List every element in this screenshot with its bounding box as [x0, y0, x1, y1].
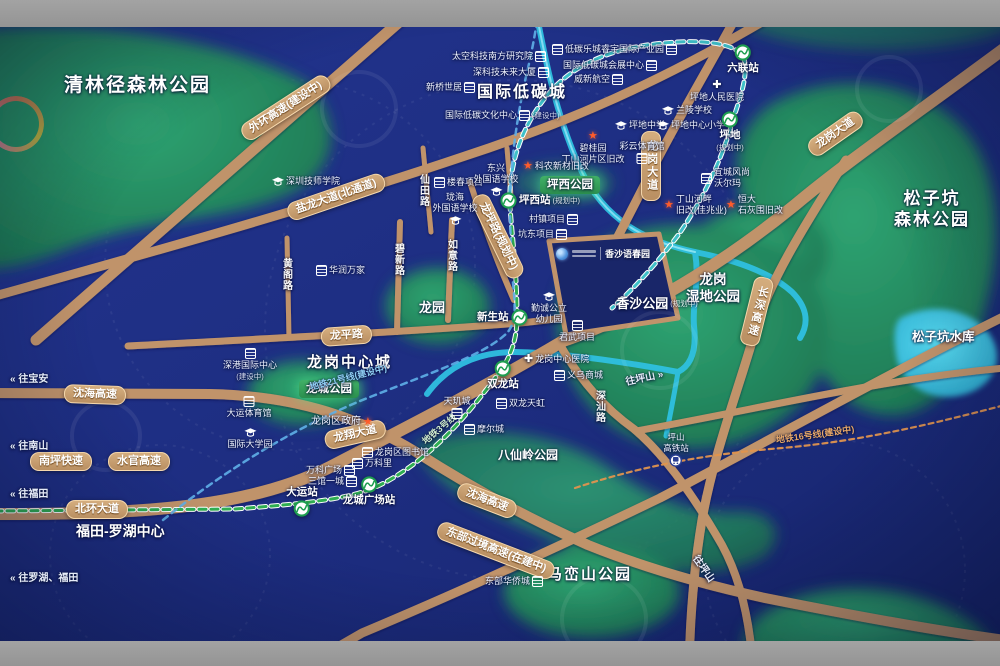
building-icon [552, 44, 563, 55]
poi-shuanglong-tianhong: 双龙天虹 [496, 398, 545, 409]
station-shuanglong: 双龙站 [487, 360, 519, 391]
developer-emblem-icon [556, 248, 568, 260]
park-qinglinjing-label: 清林径森林公园 [64, 74, 211, 98]
road-huangge-road-label: 黄阁路 [279, 258, 292, 291]
building-icon [612, 74, 623, 85]
building-icon [556, 229, 567, 240]
building-icon [464, 82, 475, 93]
poi-longgang-central-hospital: ✚龙岗中心医院 [524, 354, 589, 365]
poi-yiwu-mall: 义乌商城 [554, 370, 603, 381]
dir-to-futian: « 往福田 [10, 489, 48, 502]
poi-space-research-institute: 太空科技南方研究院 [452, 51, 546, 62]
metro-station-icon [722, 111, 739, 128]
building-icon [571, 320, 582, 331]
poi-tianji-city: 天玑城 [443, 396, 470, 419]
poi-shengang-intl-center: 深港国际中心(建设中) [223, 348, 277, 382]
building-icon [554, 370, 565, 381]
poi-hengda-shihuiwei-redev: ★恒大 石灰围旧改 [726, 194, 783, 217]
road-shenhai-expwy-w-pill: 沈海高速 [64, 384, 127, 405]
metro-station-icon [495, 360, 512, 377]
poi-kenong-redev: ★科农新材旧改 [523, 161, 589, 172]
metro-station-icon [735, 44, 752, 61]
building-icon [535, 51, 546, 62]
building-icon [244, 348, 255, 359]
school-icon [615, 121, 627, 131]
building-icon [316, 265, 327, 276]
building-icon [636, 153, 647, 164]
redev-star-icon: ★ [363, 417, 373, 428]
poi-vanke-li: 万科里 [352, 458, 392, 469]
poi-low-carbon-lecheng: 低碳乐城 [552, 44, 601, 55]
park-songzikeng-label: 松子坑 森林公园 [894, 188, 970, 231]
park-longyuan-label: 龙园 [419, 300, 445, 316]
poi-pingdi-central-primary: 坪地中心小学 [657, 120, 725, 131]
building-icon [519, 110, 530, 121]
rail-station-icon [669, 454, 682, 467]
redev-star-icon: ★ [588, 131, 598, 142]
hospital-icon: ✚ [524, 354, 533, 365]
station-dayun: 大运站 [286, 486, 318, 517]
poi-junwu-project: 君武项目 [559, 320, 595, 343]
metro-station-icon [294, 500, 311, 517]
poi-yicheng-walmart: 宜城风尚 沃尔玛 [701, 167, 750, 190]
road-shuiguan-expwy-pill: 水官高速 [108, 452, 170, 471]
building-icon [666, 44, 677, 55]
dir-to-luohu-futian: « 往罗湖、福田 [10, 573, 78, 586]
poi-dingshan-riverside-redev: ★丁山河畔 旧改(佳兆业) [664, 194, 727, 217]
school-icon [657, 121, 669, 131]
poi-low-carbon-culture-center: 国际低碳文化中心(建设中) [445, 110, 560, 121]
poi-moer-city: 摩尔城 [464, 424, 504, 435]
poi-xinqiao-shiju: 新桥世居 [426, 82, 475, 93]
status-bar-top [0, 0, 1000, 27]
redev-star-icon: ★ [726, 200, 736, 211]
park-baxianling-label: 八仙岭公园 [498, 448, 558, 463]
building-icon [701, 173, 712, 184]
station-longcheng-square: 龙城广场站 [343, 476, 396, 507]
building-icon [646, 60, 657, 71]
dir-to-nanshan: « 往南山 [10, 441, 48, 454]
poi-shenzhen-technician-college: 深圳技师学院 [272, 176, 340, 187]
road-shenshan-road-label: 深汕路 [592, 390, 605, 423]
school-icon [662, 106, 674, 116]
station-pingxi: 坪西站(规划中) [500, 192, 580, 209]
poi-vanke-plaza: 万科广场 [306, 465, 355, 476]
building-icon [464, 424, 475, 435]
location-map: 香沙语春园 清林径森林公园国际低碳城松子坑 森林公园松子坑水库龙岗 湿地公园香沙… [0, 0, 1000, 666]
building-icon [538, 67, 549, 78]
hospital-icon: ✚ [712, 80, 721, 91]
road-beihuan-avenue-pill: 北环大道 [66, 500, 128, 519]
station-pingdi-sub: (规划中) [716, 143, 744, 152]
poi-weixin-aviation: 威新航空 [574, 74, 623, 85]
poi-low-carbon-culture-center-sub: (建设中) [532, 111, 560, 120]
park-maluanshan-label: 马峦山公园 [547, 566, 632, 585]
poi-pingshan-hsr-station: 坪山 高铁站 [663, 432, 689, 467]
watermark-ring [320, 70, 398, 148]
area-low-carbon-city-label: 国际低碳城 [477, 83, 567, 103]
building-icon [496, 398, 507, 409]
road-ruyi-road-label: 如意路 [444, 239, 457, 272]
logo-divider [600, 247, 601, 260]
metro-station-icon [511, 309, 528, 326]
building-icon [344, 465, 355, 476]
station-pingxi-sub: (规划中) [553, 196, 581, 205]
poi-ruiyu-industrial-park: 睿宇国际产业园 [601, 44, 677, 55]
redev-star-icon: ★ [664, 200, 674, 211]
school-icon [543, 292, 555, 302]
road-bixin-road-label: 碧新路 [391, 243, 404, 276]
road-xiantian-road-label: 仙田路 [416, 174, 429, 207]
poi-pingdi-peoples-hospital: ✚坪地人民医院 [690, 80, 744, 103]
road-nanping-expwy-pill: 南坪快速 [30, 452, 92, 471]
poi-china-resources-vanguard: 华润万家 [316, 265, 365, 276]
poi-intl-university-park: 国际大学园 [227, 428, 272, 450]
poi-longhai-foreign-school: 珑海 外国语学校 [432, 192, 477, 226]
building-icon [451, 408, 462, 419]
metro-station-icon [500, 192, 517, 209]
building-icon [532, 576, 543, 587]
building-icon [434, 177, 445, 188]
project-name: 香沙语春园 [605, 247, 650, 260]
dir-to-baoan: « 往宝安 [10, 374, 48, 387]
poi-oct-east: 东部华侨城 [485, 576, 543, 587]
poi-dayun-gym: 大运体育馆 [226, 396, 271, 419]
project-logo: 香沙语春园 [556, 247, 650, 260]
park-xiangsha-label-sub: (规划中) [670, 299, 698, 308]
poi-lanling-school: 兰陵学校 [662, 105, 712, 116]
status-bar-bottom [0, 641, 1000, 666]
poi-kengdong-project: 坑东项目 [518, 229, 567, 240]
watermark-ring [855, 55, 923, 123]
poi-cunzhen-project: 村镇项目 [529, 214, 578, 225]
station-pingdi: 坪地(规划中) [716, 111, 744, 153]
school-icon [244, 428, 256, 438]
poi-low-carbon-expo-center: 国际低碳城会展中心 [563, 60, 657, 71]
park-xiangsha-label: 香沙公园(规划中) [616, 296, 698, 312]
developer-name-mark [572, 250, 596, 257]
building-icon [243, 396, 254, 407]
metro-station-icon [361, 476, 378, 493]
station-liulian: 六联站 [727, 44, 759, 75]
school-icon [272, 177, 284, 187]
building-icon [567, 214, 578, 225]
school-icon [449, 216, 461, 226]
station-xinsheng: 新生站 [477, 309, 528, 326]
poi-longgang-district-government: 龙岗区政府★ [311, 416, 373, 429]
poi-longgang-library: 龙岗区图书馆 [362, 447, 429, 458]
poi-future-tech-tower: 深科技未来大厦 [473, 67, 549, 78]
poi-caiyun-gym: 彩云体育馆 [619, 141, 664, 164]
redev-star-icon: ★ [523, 161, 533, 172]
building-icon [362, 447, 373, 458]
road-longping-road-pill: 龙平路 [320, 324, 372, 346]
label-songzikeng-reservoir: 松子坑水库 [912, 330, 975, 346]
area-futian-luohu-label: 福田-罗湖中心 [76, 523, 165, 541]
poi-shengang-intl-center-sub: (建设中) [223, 372, 277, 381]
